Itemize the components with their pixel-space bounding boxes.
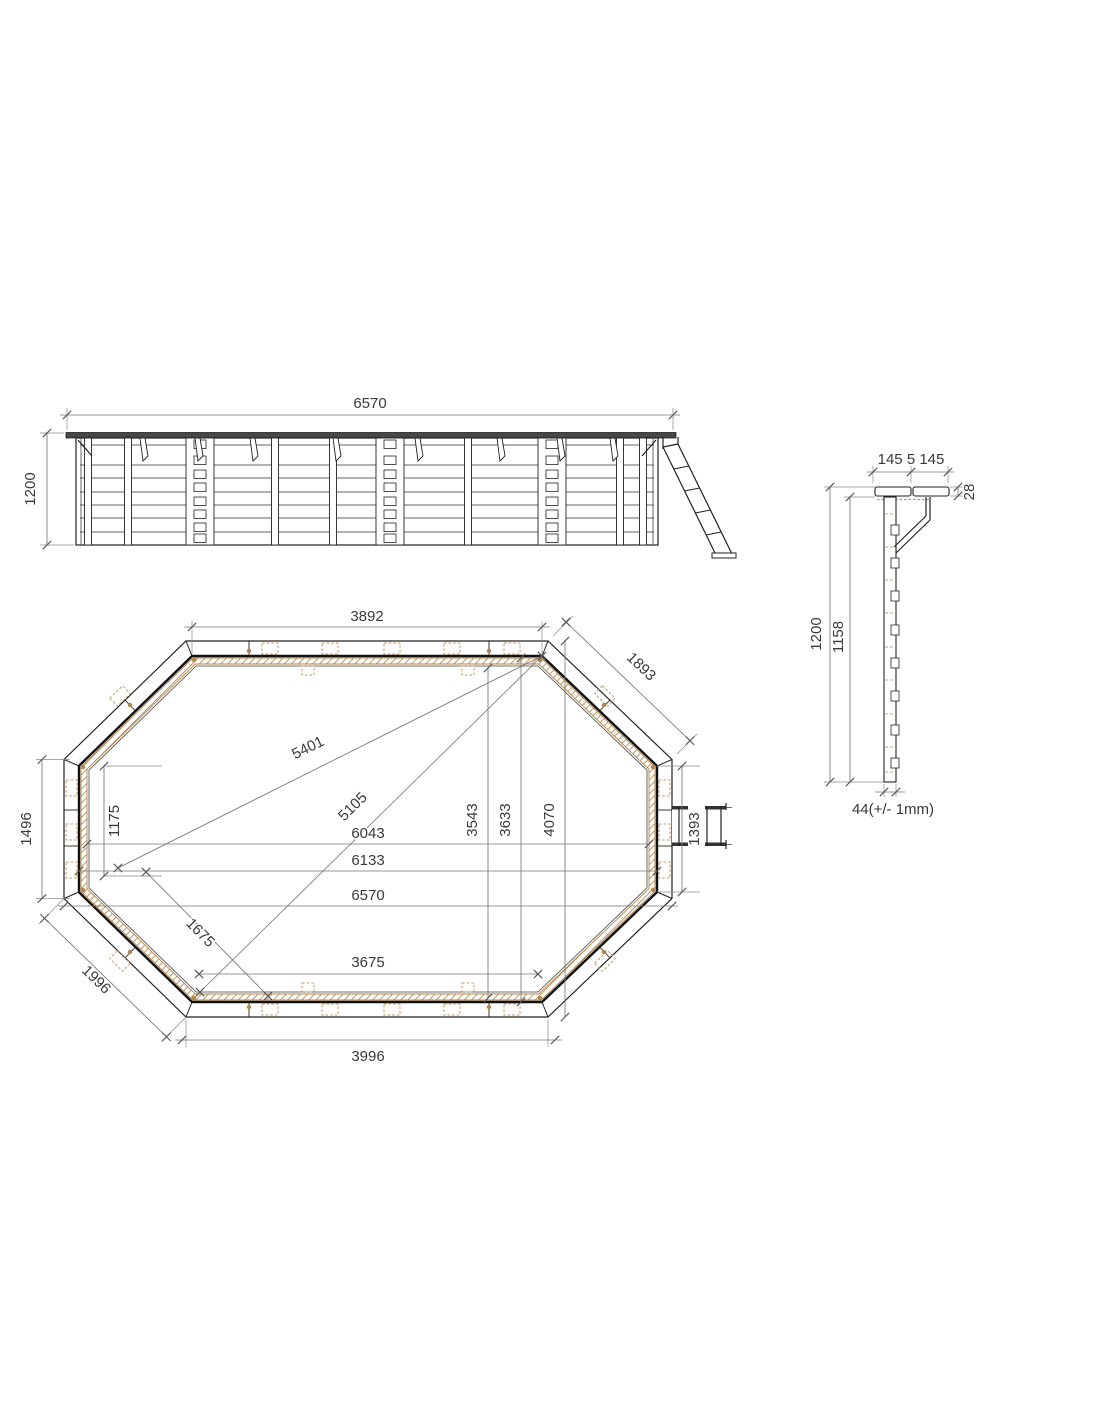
dim-plan-outer-height: 4070 <box>541 803 558 836</box>
dim-plan-right-side: 1393 <box>686 812 703 845</box>
dim-plan-inner-height: 3633 <box>497 803 514 836</box>
pool-technical-drawing-page: 6570 1200 <box>0 0 1100 1422</box>
dim-plan-top-width: 3892 <box>350 608 383 625</box>
dim-plan-bl-edge-outer: 1996 <box>78 962 114 997</box>
ladder-side-icon <box>663 437 736 558</box>
dim-plan-diagonal-max: 5401 <box>289 733 326 763</box>
dim-plan-inner-width: 6133 <box>351 852 384 869</box>
wall-plank-stack <box>884 497 896 782</box>
dim-plan-diagonal-inner: 5105 <box>335 789 371 825</box>
coping-board-left <box>875 487 911 496</box>
pool-wall <box>76 438 658 545</box>
side-elevation-view: 6570 1200 <box>22 395 736 558</box>
dim-plan-outer-width: 6570 <box>351 887 384 904</box>
coping-board <box>66 433 676 439</box>
dim-plan-left-side: 1496 <box>18 812 35 845</box>
support-bracket <box>894 497 930 553</box>
dim-plan-bottom-inner: 3675 <box>351 954 384 971</box>
dim-side-length: 6570 <box>353 395 386 412</box>
dim-plan-liner-height: 3543 <box>464 803 481 836</box>
dim-section-height-inner: 1158 <box>830 621 847 653</box>
dim-section-plank-thickness: 44(+/- 1mm) <box>852 801 934 818</box>
dim-section-coping: 145 5 145 <box>878 451 945 468</box>
dim-plan-liner-width: 6043 <box>351 825 384 842</box>
plan-view: 3892 1893 1496 1175 5401 5105 6043 6133 … <box>18 608 732 1065</box>
dim-plan-bottom-outer: 3996 <box>351 1048 384 1065</box>
dim-side-height: 1200 <box>22 472 39 505</box>
dim-section-coping-thickness: 28 <box>961 484 978 501</box>
dim-section-height-outer: 1200 <box>808 617 825 650</box>
technical-drawing: 6570 1200 <box>0 0 1100 1422</box>
dim-plan-top-right-edge: 1893 <box>623 649 659 684</box>
dim-plan-left-upper: 1175 <box>106 805 123 837</box>
wall-section-view: 145 5 145 28 1200 1158 44(+/- 1 <box>808 451 978 818</box>
dim-plan-bl-edge-inner: 1675 <box>182 915 218 951</box>
coping-board-right <box>913 487 949 496</box>
